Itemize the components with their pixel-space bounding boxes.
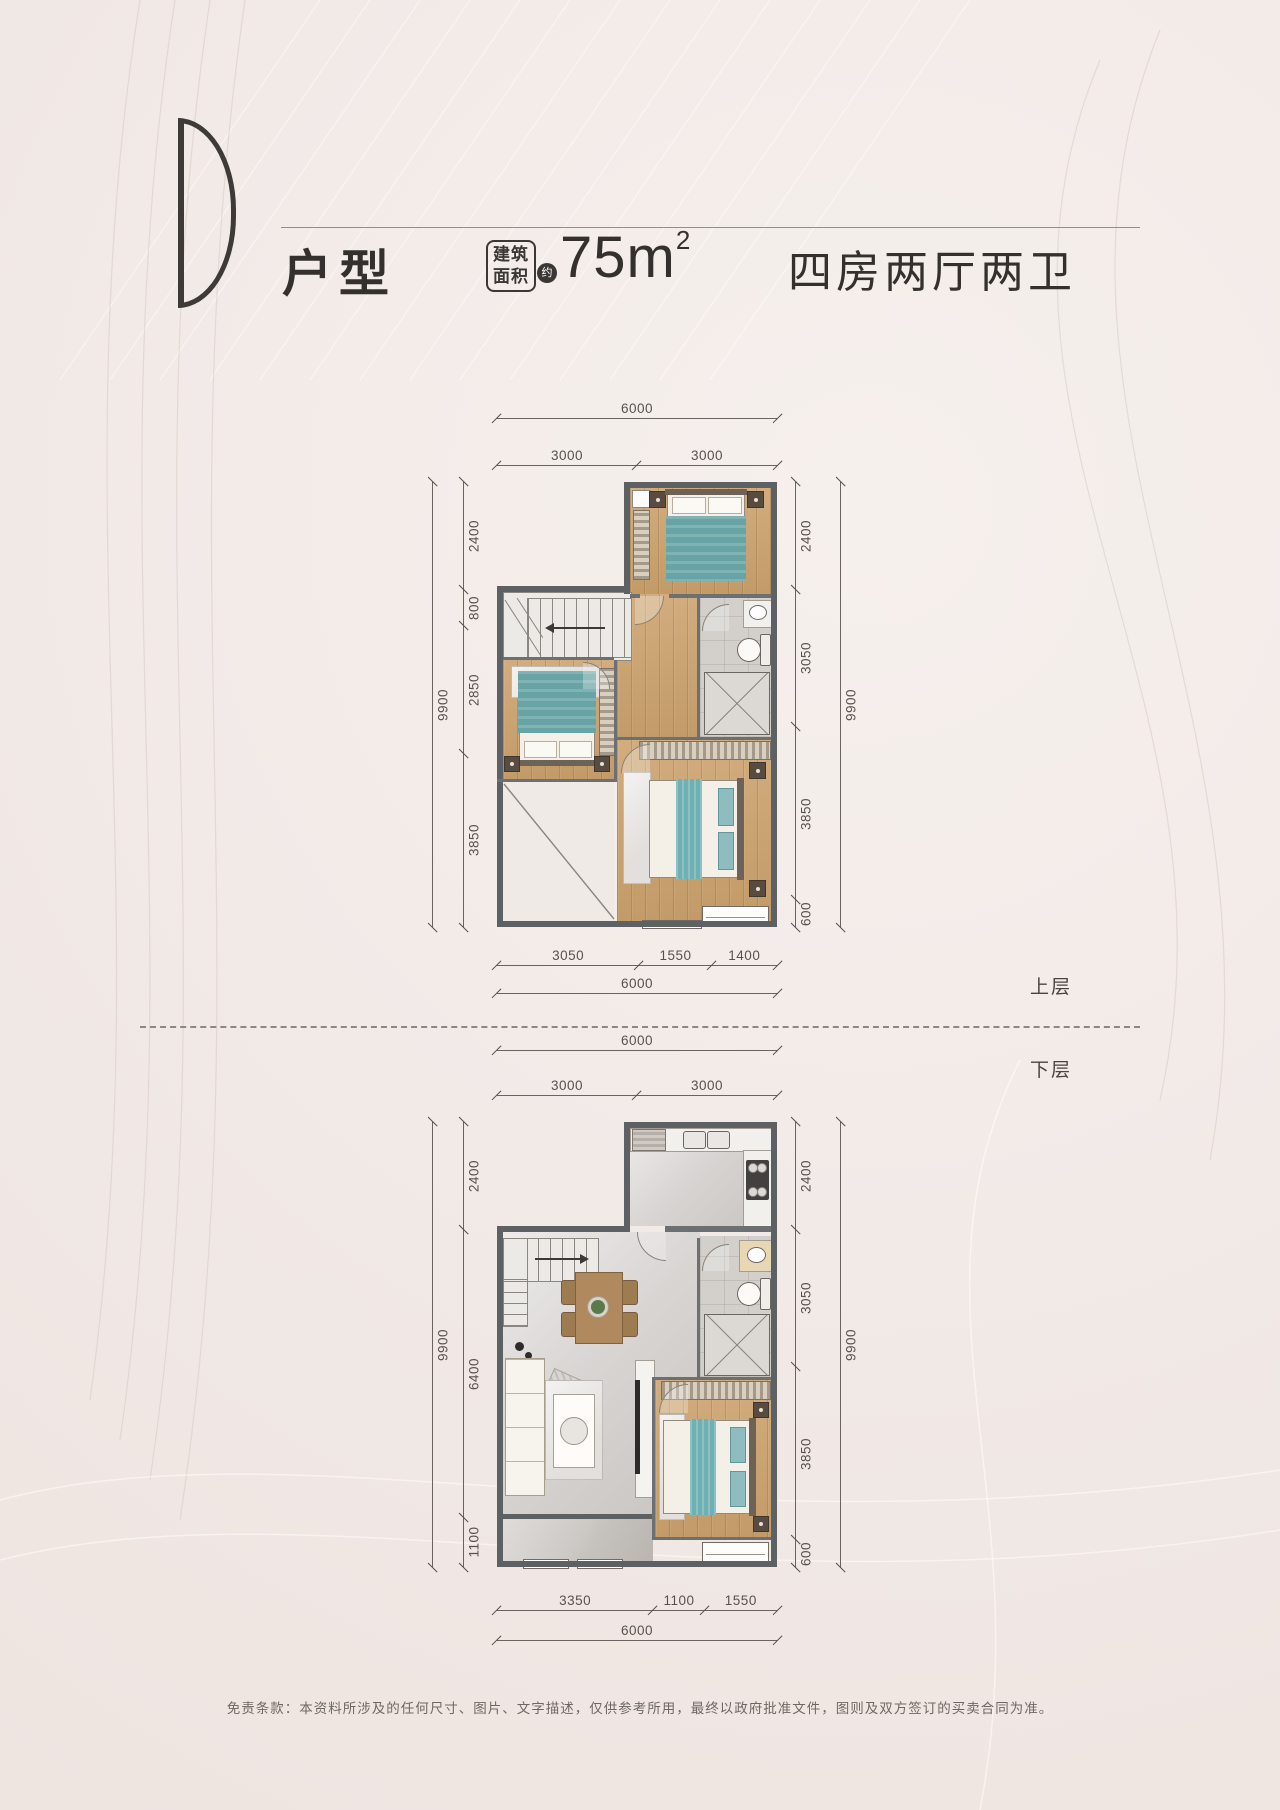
lower-toilet-tank: [760, 1278, 771, 1310]
dimension-segment: 9900: [432, 482, 433, 927]
dimension-segment: 3000: [637, 1095, 777, 1096]
dimension-label: 800: [467, 596, 482, 620]
dimension-segment: 2400: [463, 1122, 464, 1230]
dimension-label: 1550: [725, 1593, 757, 1608]
upper-shower: [704, 672, 770, 735]
upper-toilet-tank: [760, 634, 771, 666]
nightstand: [747, 491, 764, 508]
dimension-label: 6000: [621, 1623, 653, 1638]
floors-divider: [140, 1026, 1140, 1028]
wall: [697, 598, 700, 737]
dimension-label: 1400: [728, 948, 760, 963]
floor-lamp: [515, 1342, 524, 1351]
rooms-configuration-label: 四房两厅两卫: [788, 236, 1076, 300]
lower-dim-top-segments: 30003000: [497, 1095, 777, 1096]
nightstand: [753, 1516, 769, 1532]
dimension-label: 6400: [467, 1358, 482, 1390]
table-plant: [591, 1300, 605, 1314]
upper-dim-left-total: 9900: [432, 482, 433, 927]
unit-type-label: 户型: [282, 234, 396, 306]
unit-letter: D: [178, 118, 236, 308]
lower-toilet: [737, 1282, 761, 1306]
dimension-label: 600: [799, 902, 814, 926]
dimension-label: 3050: [552, 948, 584, 963]
lower-bedroom-bed: [663, 1420, 751, 1514]
lower-dim-left-total: 9900: [432, 1122, 433, 1567]
upper-bedroom3-bed: [649, 780, 739, 878]
wall: [624, 482, 630, 594]
area-badge-line1: 建筑: [493, 244, 529, 266]
dimension-segment: 2850: [463, 626, 464, 754]
lower-dim-bottom-segments: 335011001550: [497, 1610, 777, 1611]
dimension-segment: 800: [463, 590, 464, 626]
dimension-label: 3350: [559, 1593, 591, 1608]
upper-dim-bottom-segments: 305015501400: [497, 965, 777, 966]
area-badge-line2: 面积: [493, 266, 529, 288]
coffee-table: [553, 1394, 595, 1468]
unit-letter-shape: [178, 118, 236, 308]
upper-bedroom1-bed: [667, 491, 745, 580]
dimension-segment: 6000: [497, 418, 777, 419]
dimension-segment: 1550: [705, 1610, 777, 1611]
nightstand: [753, 1402, 769, 1418]
lower-dim-bottom-total: 6000: [497, 1640, 777, 1641]
wall: [624, 482, 777, 488]
wall: [497, 1226, 630, 1232]
dimension-label: 6000: [621, 401, 653, 416]
wall: [665, 1226, 771, 1232]
dimension-segment: 3000: [497, 1095, 637, 1096]
lower-floor-label: 下层: [1030, 1055, 1072, 1082]
kitchen-sink: [683, 1131, 706, 1149]
nightstand: [594, 756, 610, 772]
dimension-label: 6000: [621, 1033, 653, 1048]
upper-dim-top-total: 6000: [497, 418, 777, 419]
dimension-label: 3850: [799, 1437, 814, 1469]
dimension-label: 1100: [663, 1593, 694, 1608]
kitchen-sink: [707, 1131, 730, 1149]
wall: [771, 1122, 777, 1567]
lower-bath-basin: [747, 1247, 766, 1263]
dimension-label: 3050: [799, 1282, 814, 1314]
disclaimer-text: 免责条款：本资料所涉及的任何尺寸、图片、文字描述，仅供参考所用，最终以政府批准文…: [0, 1697, 1280, 1717]
nightstand: [749, 762, 766, 779]
building-area-badge: 建筑 面积: [486, 240, 536, 292]
dimension-segment: 3050: [795, 1230, 796, 1367]
upper-bedroom3-wardrobe: [639, 741, 771, 760]
dimension-label: 2850: [467, 674, 482, 706]
lower-dim-left-segments: 240064001100: [463, 1122, 464, 1567]
wall: [624, 1122, 777, 1128]
nightstand: [504, 756, 520, 772]
dimension-segment: 6000: [497, 1640, 777, 1641]
fridge: [632, 1129, 666, 1151]
dimension-segment: 3050: [497, 965, 639, 966]
approx-badge: 约: [537, 263, 557, 283]
upper-dim-right-total: 9900: [840, 482, 841, 927]
wall: [497, 1561, 777, 1567]
dimension-segment: 2400: [795, 1122, 796, 1230]
wall: [497, 586, 630, 592]
wall: [497, 586, 503, 927]
dimension-label: 1550: [659, 948, 691, 963]
dimension-label: 6000: [621, 976, 653, 991]
floor-plan-upper: [497, 482, 777, 927]
sofa: [505, 1358, 545, 1496]
wall: [652, 1377, 771, 1380]
nightstand: [749, 880, 766, 897]
wall: [697, 1238, 700, 1377]
dimension-label: 9900: [844, 1328, 859, 1360]
upper-void-diagonal: [497, 779, 617, 921]
dimension-segment: 3050: [795, 590, 796, 727]
nightstand: [649, 491, 666, 508]
upper-stairs-direction-arrow: [547, 627, 605, 629]
dimension-segment: 3850: [463, 754, 464, 927]
lower-stairs-lower-flight: [503, 1279, 528, 1327]
dimension-segment: 2400: [463, 482, 464, 590]
dimension-segment: 9900: [840, 482, 841, 927]
header-divider-line: [281, 227, 1140, 228]
upper-stairs-break-line: [503, 598, 543, 658]
dimension-label: 2400: [799, 520, 814, 552]
lower-stairs-landing: [503, 1238, 528, 1282]
wall: [624, 1122, 630, 1232]
dimension-label: 3000: [551, 448, 583, 463]
wall: [614, 737, 771, 740]
dimension-segment: 1100: [653, 1610, 704, 1611]
area-superscript: 2: [676, 225, 691, 255]
lower-stairs-direction-arrow: [535, 1258, 587, 1260]
dimension-label: 3000: [551, 1078, 583, 1093]
stove: [746, 1160, 769, 1200]
wall: [630, 594, 640, 598]
dimension-label: 3050: [799, 642, 814, 674]
tv: [635, 1380, 640, 1474]
dimension-label: 600: [799, 1542, 814, 1566]
dimension-segment: 3850: [795, 727, 796, 900]
dimension-segment: 2400: [795, 482, 796, 590]
upper-bedroom1-wardrobe: [633, 510, 650, 580]
dimension-segment: 9900: [432, 1122, 433, 1567]
balcony-threshold: [503, 1514, 653, 1519]
dining-chair: [621, 1280, 638, 1305]
dimension-label: 2400: [799, 1160, 814, 1192]
wall: [503, 657, 614, 660]
dimension-label: 3850: [799, 797, 814, 829]
upper-dim-bottom-total: 6000: [497, 993, 777, 994]
lower-dim-top-total: 6000: [497, 1050, 777, 1051]
dimension-label: 3850: [467, 824, 482, 856]
upper-floor-label: 上层: [1030, 972, 1072, 999]
dimension-label: 9900: [436, 1328, 451, 1360]
dimension-label: 9900: [844, 688, 859, 720]
wall: [655, 1537, 771, 1540]
dimension-segment: 1400: [712, 965, 777, 966]
floorplan-poster-page: D 户型 建筑 面积 约 75m2 四房两厅两卫 6000 30003000 9…: [0, 0, 1280, 1810]
dimension-segment: 9900: [840, 1122, 841, 1567]
upper-dim-left-segments: 240080028503850: [463, 482, 464, 927]
upper-bath-basin: [749, 605, 767, 620]
dimension-label: 3000: [691, 1078, 723, 1093]
upper-dim-top-segments: 30003000: [497, 465, 777, 466]
area-number: 75m: [560, 225, 676, 290]
dimension-label: 3000: [691, 448, 723, 463]
wall: [497, 921, 777, 927]
upper-bedroom3-rug: [623, 772, 651, 884]
balcony: [503, 1519, 653, 1561]
dimension-segment: 600: [795, 1540, 796, 1567]
dining-chair: [621, 1312, 638, 1337]
wall: [771, 482, 777, 927]
dimension-label: 2400: [467, 520, 482, 552]
dimension-label: 9900: [436, 688, 451, 720]
floor-plan-lower: [497, 1122, 777, 1567]
wall: [497, 1226, 503, 1567]
dimension-segment: 6400: [463, 1230, 464, 1518]
dimension-segment: 6000: [497, 993, 777, 994]
dimension-segment: 1100: [463, 1518, 464, 1567]
dimension-segment: 3000: [637, 465, 777, 466]
dimension-segment: 1550: [639, 965, 711, 966]
dimension-segment: 3350: [497, 1610, 653, 1611]
dimension-segment: 3850: [795, 1367, 796, 1540]
dimension-segment: 600: [795, 900, 796, 927]
lower-dim-right-segments: 240030503850600: [795, 1122, 796, 1567]
dimension-label: 2400: [467, 1160, 482, 1192]
area-value: 75m2: [560, 224, 691, 291]
dimension-label: 1100: [467, 1527, 482, 1558]
dimension-segment: 3000: [497, 465, 637, 466]
lower-dim-right-total: 9900: [840, 1122, 841, 1567]
upper-dim-right-segments: 240030503850600: [795, 482, 796, 927]
wall: [497, 779, 617, 782]
wall: [614, 660, 617, 782]
lower-shower: [704, 1314, 770, 1376]
upper-toilet: [737, 638, 761, 662]
wall: [669, 594, 771, 598]
wall: [652, 1380, 655, 1540]
dimension-segment: 6000: [497, 1050, 777, 1051]
